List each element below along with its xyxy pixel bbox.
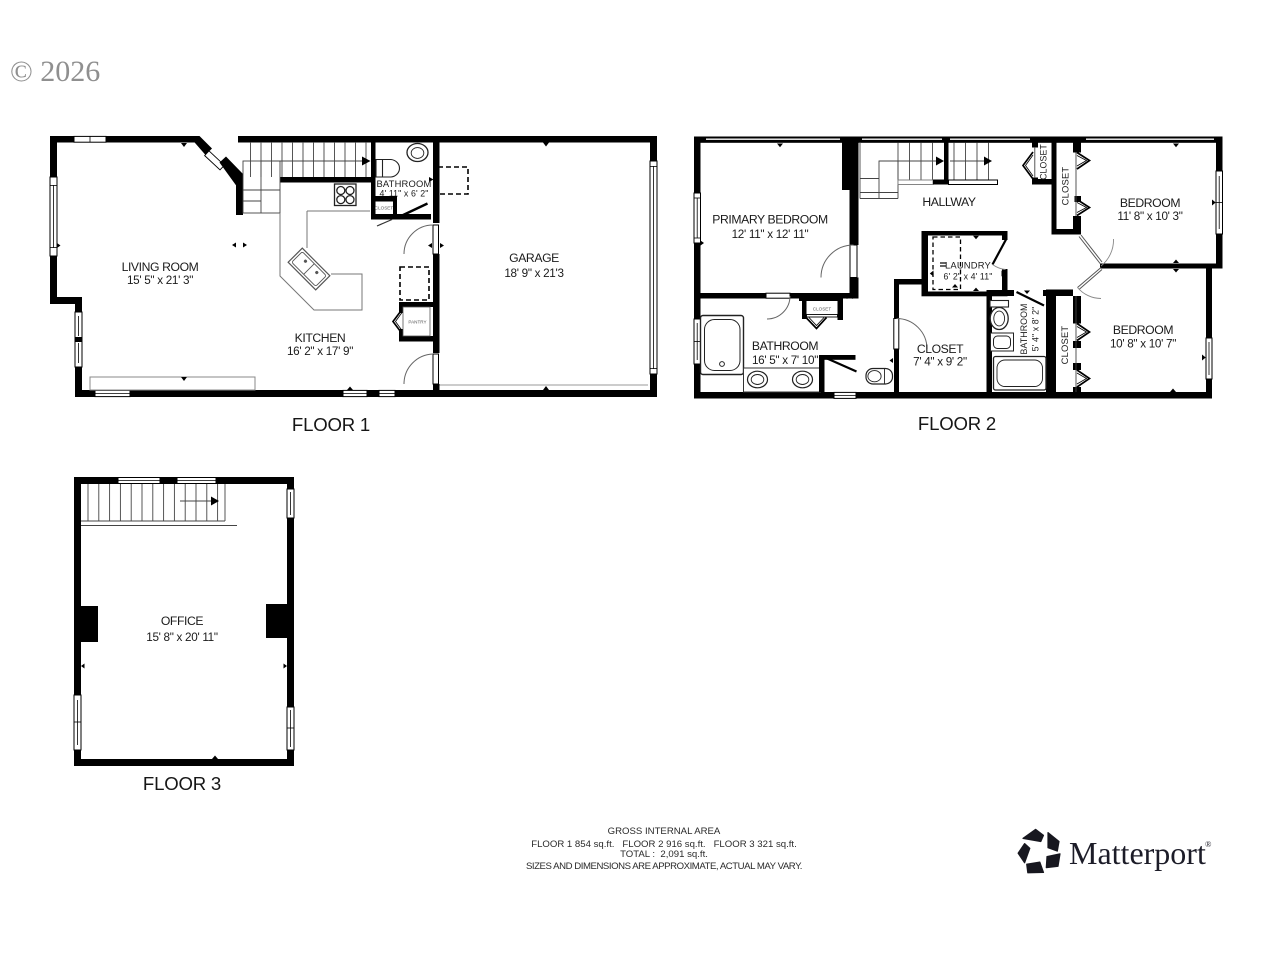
- svg-text:Matterport: Matterport: [1069, 835, 1206, 871]
- svg-text:10' 8" x 10' 7": 10' 8" x 10' 7": [1110, 338, 1176, 351]
- svg-text:PANTRY: PANTRY: [408, 320, 426, 325]
- svg-text:CLOSET: CLOSET: [375, 206, 394, 211]
- svg-text:GROSS INTERNAL AREA: GROSS INTERNAL AREA: [608, 826, 721, 837]
- svg-text:BEDROOM: BEDROOM: [1120, 196, 1180, 210]
- svg-text:OFFICE: OFFICE: [161, 614, 204, 628]
- svg-text:16' 2" x 17' 9": 16' 2" x 17' 9": [287, 345, 353, 358]
- svg-text:CLOSET: CLOSET: [1060, 167, 1071, 206]
- svg-text:16' 5" x 7' 10": 16' 5" x 7' 10": [752, 354, 818, 367]
- svg-text:CLOSET: CLOSET: [813, 307, 832, 312]
- svg-text:BEDROOM: BEDROOM: [1113, 323, 1173, 337]
- svg-text:KITCHEN: KITCHEN: [295, 331, 346, 345]
- svg-text:®: ®: [1205, 839, 1212, 849]
- svg-text:18' 9" x 21'3: 18' 9" x 21'3: [504, 267, 563, 280]
- svg-text:CLOSET: CLOSET: [1039, 144, 1049, 180]
- svg-text:6' 2" x 4' 11": 6' 2" x 4' 11": [944, 272, 993, 282]
- svg-text:CLOSET: CLOSET: [1059, 326, 1070, 365]
- svg-text:5' 4" x 8' 2": 5' 4" x 8' 2": [1031, 307, 1041, 352]
- svg-text:12' 11" x 12' 11": 12' 11" x 12' 11": [732, 228, 809, 241]
- svg-text:FLOOR 3: FLOOR 3: [143, 773, 221, 794]
- svg-text:BATHROOM: BATHROOM: [1019, 304, 1029, 355]
- svg-text:FLOOR 1: FLOOR 1: [292, 414, 370, 435]
- svg-text:BATHROOM: BATHROOM: [376, 178, 431, 189]
- svg-text:BATHROOM: BATHROOM: [752, 339, 819, 353]
- svg-text:PRIMARY BEDROOM: PRIMARY BEDROOM: [712, 213, 828, 227]
- svg-text:15' 8" x 20' 11": 15' 8" x 20' 11": [146, 631, 218, 644]
- svg-text:© 2026: © 2026: [10, 55, 100, 88]
- svg-text:LAUNDRY: LAUNDRY: [945, 260, 992, 271]
- svg-text:LIVING ROOM: LIVING ROOM: [122, 260, 199, 274]
- svg-text:HALLWAY: HALLWAY: [922, 195, 975, 209]
- svg-text:TOTAL : 2,091 sq.ft.: TOTAL : 2,091 sq.ft.: [620, 849, 708, 860]
- svg-text:FLOOR 2: FLOOR 2: [918, 413, 996, 434]
- svg-text:SIZES AND DIMENSIONS ARE APPRO: SIZES AND DIMENSIONS ARE APPROXIMATE, AC…: [526, 861, 802, 872]
- svg-text:CLOSET: CLOSET: [917, 342, 964, 356]
- svg-text:11' 8" x 10' 3": 11' 8" x 10' 3": [1117, 210, 1182, 223]
- svg-text:GARAGE: GARAGE: [509, 251, 559, 265]
- svg-text:15' 5" x 21' 3": 15' 5" x 21' 3": [127, 274, 193, 287]
- svg-text:7' 4" x 9' 2": 7' 4" x 9' 2": [913, 356, 967, 369]
